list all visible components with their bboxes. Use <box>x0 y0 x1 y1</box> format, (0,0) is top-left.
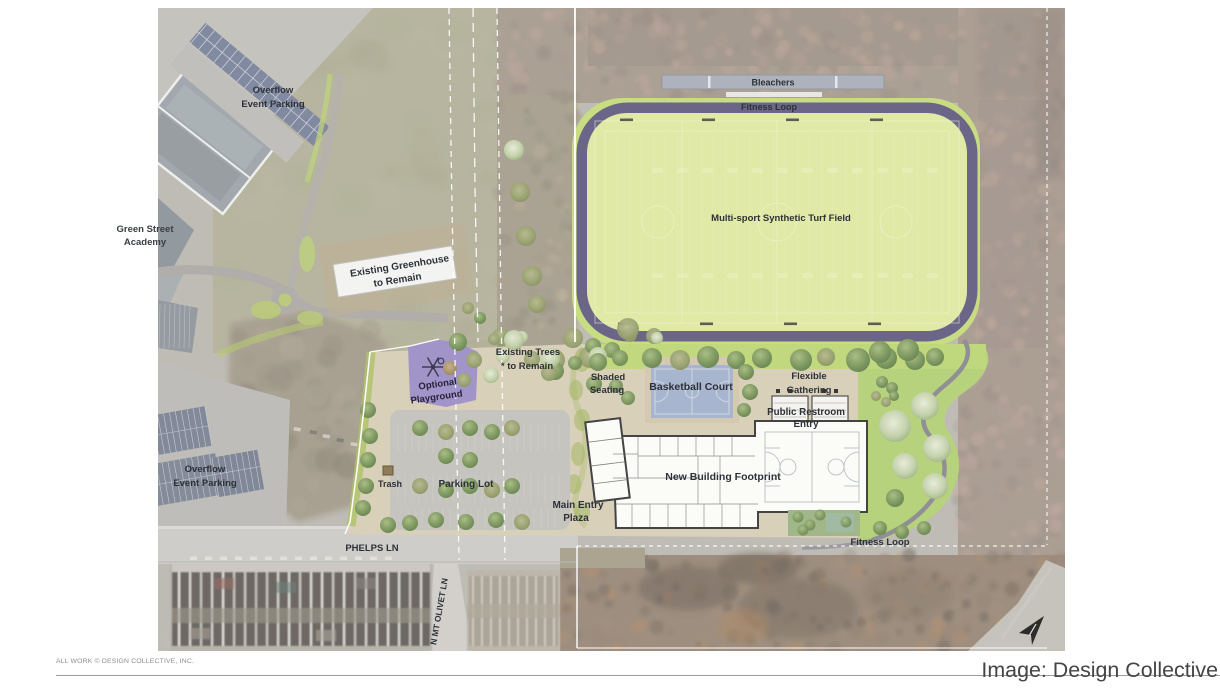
svg-text:Event Parking: Event Parking <box>173 478 237 489</box>
svg-text:Multi-sport Synthetic Turf Fie: Multi-sport Synthetic Turf Field <box>711 213 851 224</box>
svg-text:Public Restroom: Public Restroom <box>767 407 845 418</box>
svg-text:PHELPS LN: PHELPS LN <box>345 543 398 554</box>
svg-text:Fitness Loop: Fitness Loop <box>850 537 909 548</box>
svg-text:Event Parking: Event Parking <box>241 99 305 110</box>
svg-text:Existing Trees: Existing Trees <box>496 347 560 358</box>
svg-text:Entry: Entry <box>793 419 819 430</box>
svg-text:* to Remain: * to Remain <box>501 361 553 372</box>
svg-text:Fitness Loop: Fitness Loop <box>741 102 798 112</box>
svg-text:Plaza: Plaza <box>563 513 589 524</box>
svg-text:New Building Footprint: New Building Footprint <box>665 471 781 483</box>
svg-text:Overflow: Overflow <box>185 464 226 475</box>
svg-text:Bleachers: Bleachers <box>751 78 794 88</box>
svg-text:Flexible: Flexible <box>791 371 826 382</box>
svg-text:Seating: Seating <box>590 385 625 396</box>
svg-text:Basketball Court: Basketball Court <box>649 381 733 393</box>
svg-text:Trash: Trash <box>378 479 402 489</box>
svg-text:Parking Lot: Parking Lot <box>438 479 494 490</box>
svg-text:Gathering: Gathering <box>787 385 832 396</box>
svg-text:Main Entry: Main Entry <box>552 500 604 511</box>
svg-text:Overflow: Overflow <box>253 85 294 96</box>
svg-text:Shaded: Shaded <box>591 372 626 383</box>
